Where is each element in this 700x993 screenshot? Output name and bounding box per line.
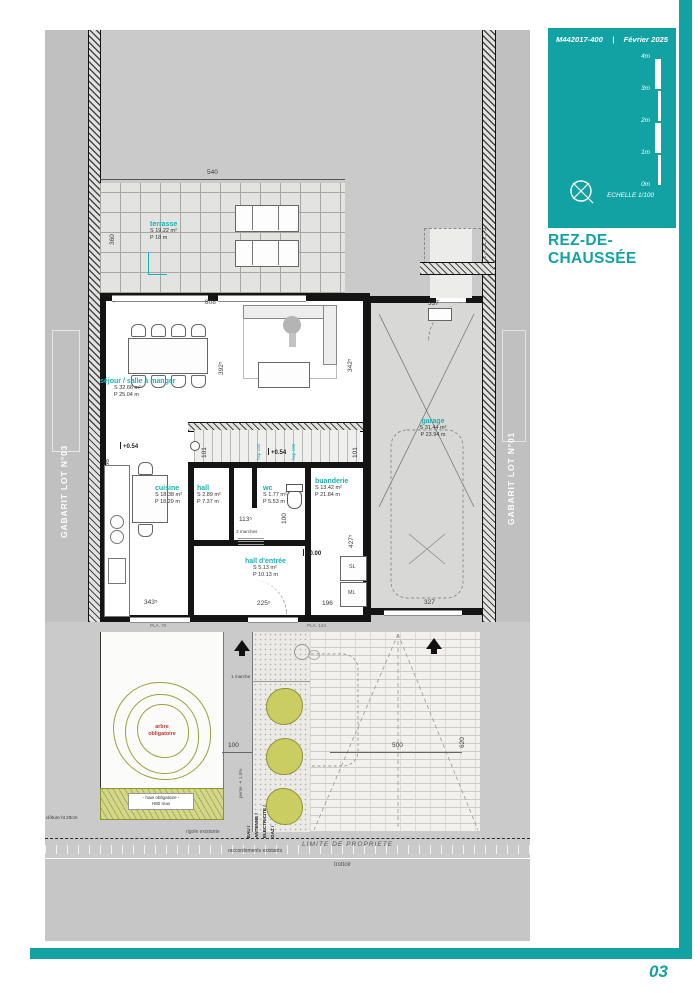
note-3-marches: 3 marches [236, 529, 257, 534]
arrow-entry-flow: → [110, 298, 117, 305]
person-sketch [283, 316, 301, 334]
room-area-wc: S 1.77 m² [263, 492, 287, 499]
room-perimeter-cuisine: P 18.29 m [155, 499, 182, 506]
room-name-hall: hall [197, 485, 221, 492]
chair [138, 462, 153, 475]
dim-620: 620 [459, 722, 466, 748]
lounge-chair-line [252, 205, 253, 230]
room-area-hall-entree: S 5.13 m² [253, 565, 286, 572]
wall-wc-left [252, 468, 257, 508]
window-sliding-2 [218, 295, 306, 302]
toilet [287, 490, 302, 509]
dim-327: 327 [424, 599, 435, 606]
chair [151, 324, 166, 337]
stair-start-circle [190, 441, 200, 451]
room-name-garage: garage [403, 418, 463, 425]
dim-360: 360 [109, 215, 116, 245]
street-area [45, 858, 530, 941]
header-separator: | [612, 35, 614, 44]
room-area-hall: S 2.89 m² [197, 492, 221, 499]
dim-427: 427⁵ [348, 522, 355, 548]
room-area-terrasse: S 19.22 m² [150, 228, 177, 235]
window-bottom-1 [130, 617, 190, 623]
north-arrow [426, 638, 442, 649]
room-perimeter-hall-entree: P 10.13 m [253, 572, 286, 579]
gabarit-lot-03-label: GABARIT LOT N°03 [59, 408, 69, 538]
sill-pla70: PLA. 70 [150, 623, 166, 628]
room-perimeter-terrasse: P 18 m [150, 235, 177, 242]
person-sketch-body [289, 333, 296, 347]
entry-door-opening [248, 617, 298, 623]
room-area-buanderie: S 13.42 m² [315, 485, 348, 492]
frame-bottom-bar [30, 948, 692, 959]
toilet-cistern [286, 484, 303, 492]
scale-tick-1m: 1m [641, 149, 650, 156]
hedge-label-line2: H80 max [129, 801, 193, 807]
room-perimeter-sejour: P 25.04 m [114, 392, 175, 399]
scale-tick-3m: 3m [641, 85, 650, 92]
dim-337: 337 [428, 300, 439, 307]
coffee-table [258, 362, 310, 388]
neighbour-right [495, 30, 530, 622]
chair [191, 324, 206, 337]
dim-500: 500 [392, 742, 403, 749]
buanderie-label: buanderie S 13.42 m² P 21.84 m [315, 478, 348, 499]
dim-343: 343⁵ [144, 599, 158, 606]
level-terrace: +0.54 [120, 442, 138, 450]
note-1-marche: 1 marche [231, 674, 250, 679]
driveway-markings [310, 632, 480, 832]
chair [171, 324, 186, 337]
cuisine-label: cuisine S 18.38 m² P 18.29 m [155, 485, 182, 506]
hsp-note-1: hsp 180 [256, 430, 261, 460]
lounge-chair [235, 240, 299, 267]
dim-540: 540 [207, 169, 218, 176]
scale-bar-segment [655, 123, 661, 153]
limite-label: LIMITE DE PROPRIETE [302, 841, 393, 848]
utility-gaz: GAZ / [270, 806, 275, 838]
path-step-line [252, 681, 310, 682]
raccordements-label: raccordements existants [228, 848, 282, 854]
room-perimeter-buanderie: P 21.84 m [315, 492, 348, 499]
scale-bar-segment [655, 59, 661, 89]
chair [131, 324, 146, 337]
level-entry: +0.00 [303, 549, 321, 557]
drawing-title: REZ-DE-CHAUSSÉE [548, 232, 700, 268]
lounge-chair-line [278, 205, 279, 230]
terrace-floor [100, 183, 345, 293]
doc-number: M442017-400 [556, 35, 603, 44]
room-name-wc: wc [263, 485, 287, 492]
room-area-sejour: S 32.66 m² [114, 385, 175, 392]
terrace-label: terrasse S 19.22 m² P 18 m [150, 221, 177, 242]
tree-label-line1: arbre [132, 724, 192, 731]
garage-label: garage S 31.44 m² P 23.94 m [403, 418, 463, 439]
plan-sheet: GABARIT LOT N°03 GABARIT LOT N°01 540 36… [0, 0, 700, 993]
room-name-buanderie: buanderie [315, 478, 348, 485]
dining-table [128, 338, 208, 374]
staircase [194, 430, 360, 462]
chair [191, 375, 206, 388]
chair [138, 524, 153, 537]
dim-392: 392⁵ [218, 345, 225, 375]
scale-tick-4m: 4m [641, 53, 650, 60]
dim-101a: 101 [201, 436, 208, 458]
hall-label: hall S 2.89 m² P 7.37 m [197, 485, 221, 506]
dim-808: 808 [205, 299, 216, 306]
washer-label: ML [348, 590, 356, 596]
lounge-chair-line [252, 240, 253, 265]
doc-date: Février 2025 [624, 35, 668, 44]
porch-canopy [424, 228, 486, 264]
room-name-hall-entree: hall d'entrée [245, 558, 286, 565]
dryer-label: SL [349, 564, 356, 570]
steps-glyph [238, 536, 264, 545]
frame-right-bar [679, 0, 692, 959]
scale-tick-2m: 2m [641, 117, 650, 124]
dim-line-500 [330, 752, 462, 753]
room-area-garage: S 31.44 m² [403, 425, 463, 432]
dim-342: 342⁵ [347, 342, 354, 372]
level-stair: +0.54 [268, 448, 286, 456]
sejour-label: séjour / salle à manger S 32.66 m² P 25.… [100, 378, 175, 399]
party-wall-right [482, 30, 496, 622]
window-sliding-1 [112, 295, 208, 302]
room-area-cuisine: S 18.38 m² [155, 492, 182, 499]
utility-eau: EAU / [246, 806, 251, 838]
garage-door-opening [384, 610, 462, 616]
curb-ticks [45, 845, 530, 854]
title-block: M442017-400 | Février 2025 4m 3m 2m 1m 0… [548, 28, 676, 228]
dim-line-540 [100, 179, 345, 180]
dim-225: 225⁵ [257, 600, 271, 607]
hedge-label-box: - haie obligatoire - H80 max [128, 793, 194, 810]
tree-label-line2: obligatoire [132, 731, 192, 738]
dim-line-100 [222, 752, 252, 753]
slope-note: pente ± 1.5% [238, 752, 243, 798]
dim-101b: 101 [352, 436, 359, 458]
room-perimeter-hall: P 7.37 m [197, 499, 221, 506]
limite-line [45, 838, 530, 839]
kitchen-hob [108, 558, 126, 584]
terrace-corner-mark [148, 252, 167, 275]
utility-antenne: ANTENNE / [254, 798, 259, 838]
porch-wall [420, 262, 494, 275]
stair-wall-bottom [188, 462, 363, 468]
scooter-sketch-wheel [308, 650, 320, 660]
sofa-arm [323, 305, 337, 365]
room-name-cuisine: cuisine [155, 485, 182, 492]
room-name-sejour: séjour / salle à manger [100, 378, 175, 385]
compass-icon [566, 176, 600, 210]
kitchen-sink [110, 515, 124, 529]
room-perimeter-garage: P 23.94 m [403, 432, 463, 439]
room-name-terrasse: terrasse [150, 221, 177, 228]
title-block-header: M442017-400 | Février 2025 [556, 35, 668, 44]
garage-markings [371, 302, 482, 612]
sill-pla144: PLA. 144 [307, 623, 326, 628]
tree-label: arbre obligatoire [132, 724, 192, 738]
scale-bar-segment [658, 91, 661, 121]
shrub [266, 738, 303, 775]
dim-196: 196 [322, 600, 333, 607]
kitchen-sink [110, 530, 124, 544]
trottoir-label: trottoir [334, 862, 351, 868]
gabarit-lot-01-label: GABARIT LOT N°01 [506, 395, 516, 525]
scale-tick-0m: 0m [641, 181, 650, 188]
fence-note: clôture ht 20cm [46, 815, 77, 820]
utility-electricite: ELECTRICITE / [262, 792, 267, 838]
scale-label: ECHELLE 1/100 [607, 192, 654, 199]
north-arrow [234, 640, 250, 651]
page-number: 03 [649, 962, 668, 982]
lounge-chair [235, 205, 299, 232]
dim-100path: 100 [228, 742, 239, 749]
hall-entree-label: hall d'entrée S 5.13 m² P 10.13 m [245, 558, 286, 579]
dim-113: 113⁵ [239, 516, 252, 523]
rigole-label: rigole existante [186, 829, 220, 835]
wall-hall-right [229, 468, 234, 544]
lounge-chair-line [278, 240, 279, 265]
hsp-note-2: hsp 180 [291, 430, 296, 460]
scale-bar-segment [658, 155, 661, 185]
